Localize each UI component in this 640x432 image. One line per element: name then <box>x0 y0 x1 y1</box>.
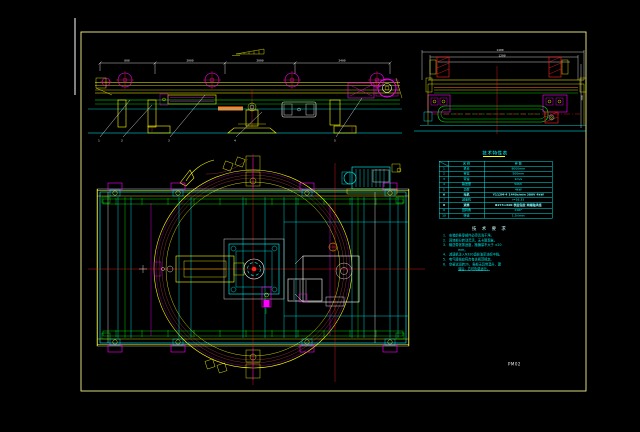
drawing-number: PM02 <box>508 362 521 367</box>
notes-title: 技 术 要 求 <box>443 225 558 232</box>
support-feet <box>148 126 356 133</box>
table-cell-value: 1.5r/min <box>484 213 552 218</box>
balloon-label: 4 <box>234 139 236 143</box>
balloon-label: 5 <box>334 139 336 143</box>
drive-unit <box>348 78 402 98</box>
balloon-label: 3 <box>168 139 170 143</box>
block-fitting <box>262 287 271 314</box>
rotation-arrow-icon <box>180 159 248 186</box>
leader-lines: 1 2 3 4 5 <box>98 95 362 143</box>
parameters-table: 名 称 参 数 1机长8000mm2带宽500mm3带速1m/s4输送量50t/… <box>439 161 553 219</box>
side-elevation-view: 800 2000 2000 2400 <box>88 49 402 143</box>
dim-label: 2000 <box>186 59 193 63</box>
plan-view <box>88 154 425 385</box>
note-line: 油后，方可负载运行。 <box>452 267 558 272</box>
table-cell-name: 转速 <box>449 213 485 218</box>
table-row: 10转速1.5r/min <box>439 213 552 218</box>
dim-label: 1400 <box>496 48 503 52</box>
table-title: 技术特性表 <box>470 149 520 156</box>
carrier-rollers <box>116 71 386 89</box>
roller <box>203 71 221 89</box>
side-motor <box>282 102 316 117</box>
drive-motor <box>342 164 401 194</box>
bearing-block-right <box>549 57 568 77</box>
dimension-lines: 1400 1200 700 <box>422 48 584 128</box>
end-view: 1400 1200 700 <box>414 48 586 134</box>
frame-members <box>118 197 408 338</box>
dim-label: 800 <box>124 59 130 63</box>
roller <box>116 71 134 89</box>
roller <box>283 71 301 89</box>
dim-label: 2000 <box>256 59 263 63</box>
balloon-label: 1 <box>98 139 100 143</box>
cad-drawing-canvas: 800 2000 2000 2400 <box>0 0 640 432</box>
center-pivot <box>252 267 257 272</box>
table-cell-no: 10 <box>439 213 449 218</box>
direction-arrow-icon <box>232 49 264 56</box>
dim-label: 1200 <box>498 53 505 57</box>
note-text: 油后，方可负载运行。 <box>458 267 490 272</box>
bearing-block-left <box>430 57 449 77</box>
dim-label: 700 <box>580 95 584 101</box>
tensioner-cylinder <box>160 94 216 105</box>
tail-pulley <box>96 78 112 95</box>
take-up-block <box>545 112 558 123</box>
technical-notes-lines: 1.安装前各零部件必须清洗干净。2.回转部分转动灵活，无卡阻现象。3.输送带张紧… <box>443 234 558 272</box>
dim-label: 2400 <box>338 59 345 63</box>
dimension-lines: 800 2000 2000 2400 <box>99 59 392 75</box>
table-title-underline <box>483 156 505 157</box>
orange-part <box>218 107 243 111</box>
drawing-number-block: PM02 <box>508 362 534 371</box>
technical-notes: 技 术 要 求 1.安装前各零部件必须清洗干净。2.回转部分转动灵活，无卡阻现象… <box>443 225 640 319</box>
pulley-housing-right <box>543 95 567 112</box>
balloon-label: 2 <box>121 139 123 143</box>
